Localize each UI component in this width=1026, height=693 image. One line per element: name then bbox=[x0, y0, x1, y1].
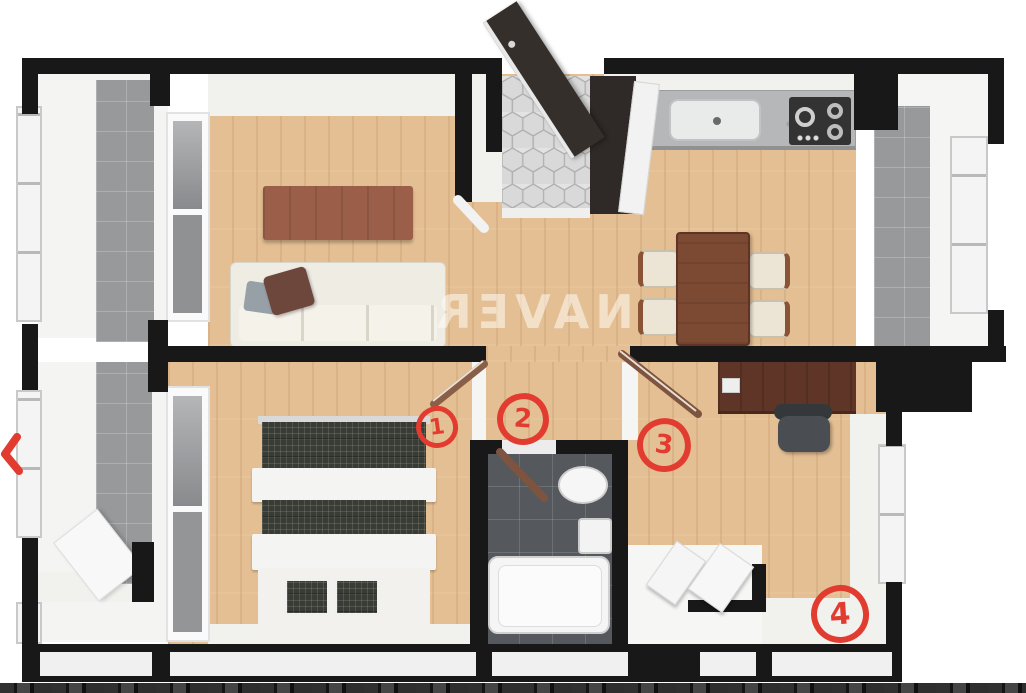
office-door-leaf-highlight bbox=[620, 351, 696, 411]
naver-watermark: NAVER bbox=[412, 284, 652, 340]
office-door-leaf bbox=[622, 354, 698, 414]
annotation-mark-1-label: 1 bbox=[428, 414, 447, 441]
annotation-mark-2-label: 2 bbox=[513, 403, 533, 434]
living-door-leaf bbox=[458, 200, 484, 228]
annotation-mark-4-label: 4 bbox=[828, 596, 851, 632]
bathroom-door-leaf bbox=[500, 452, 544, 498]
floor-plan: NAVER 1 2 3 4 bbox=[0, 0, 1026, 693]
cropped-caption-strip bbox=[0, 683, 1026, 693]
red-arrow-icon bbox=[5, 437, 19, 471]
door-swing-overlay bbox=[0, 0, 1026, 693]
annotation-mark-3-label: 3 bbox=[653, 429, 675, 461]
bedroom-door-leaf-highlight bbox=[433, 361, 483, 401]
bedroom-door-leaf bbox=[434, 364, 484, 404]
